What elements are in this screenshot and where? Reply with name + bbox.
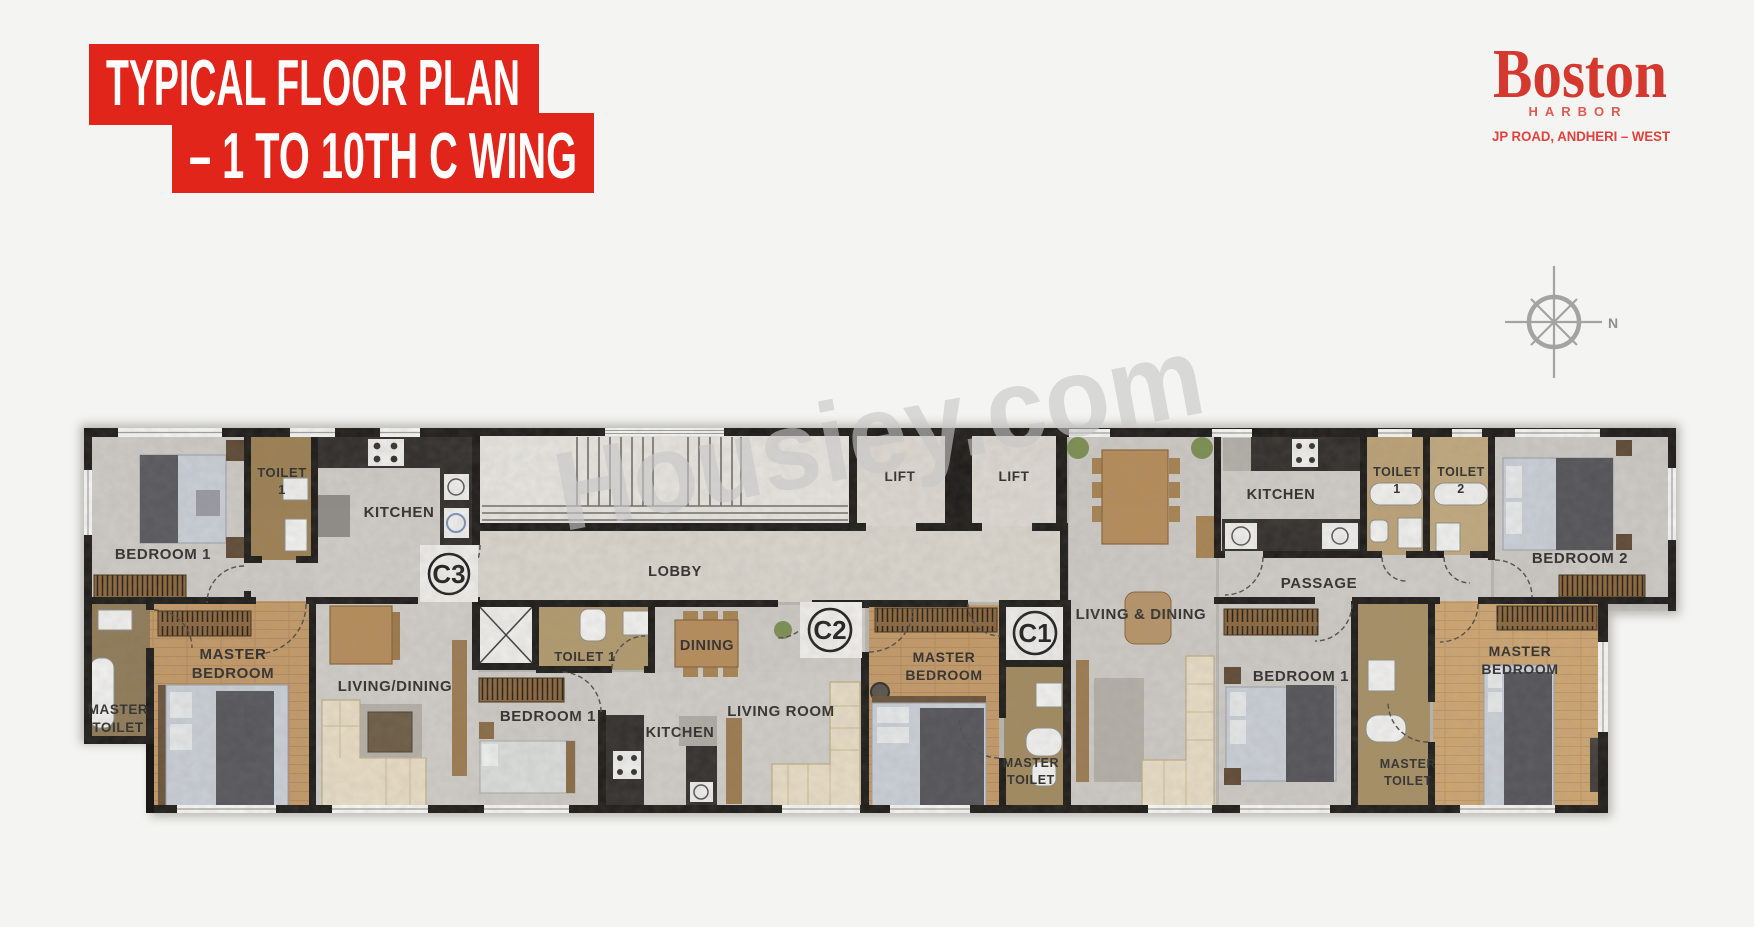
svg-text:HARBOR: HARBOR [1528, 104, 1627, 119]
svg-text:– 1 TO 10TH C WING: – 1 TO 10TH C WING [189, 119, 577, 192]
svg-text:TYPICAL FLOOR PLAN: TYPICAL FLOOR PLAN [106, 46, 520, 119]
svg-text:Boston: Boston [1493, 36, 1667, 113]
svg-text:JP ROAD, ANDHERI – WEST: JP ROAD, ANDHERI – WEST [1492, 129, 1671, 144]
svg-text:N: N [1608, 315, 1618, 331]
